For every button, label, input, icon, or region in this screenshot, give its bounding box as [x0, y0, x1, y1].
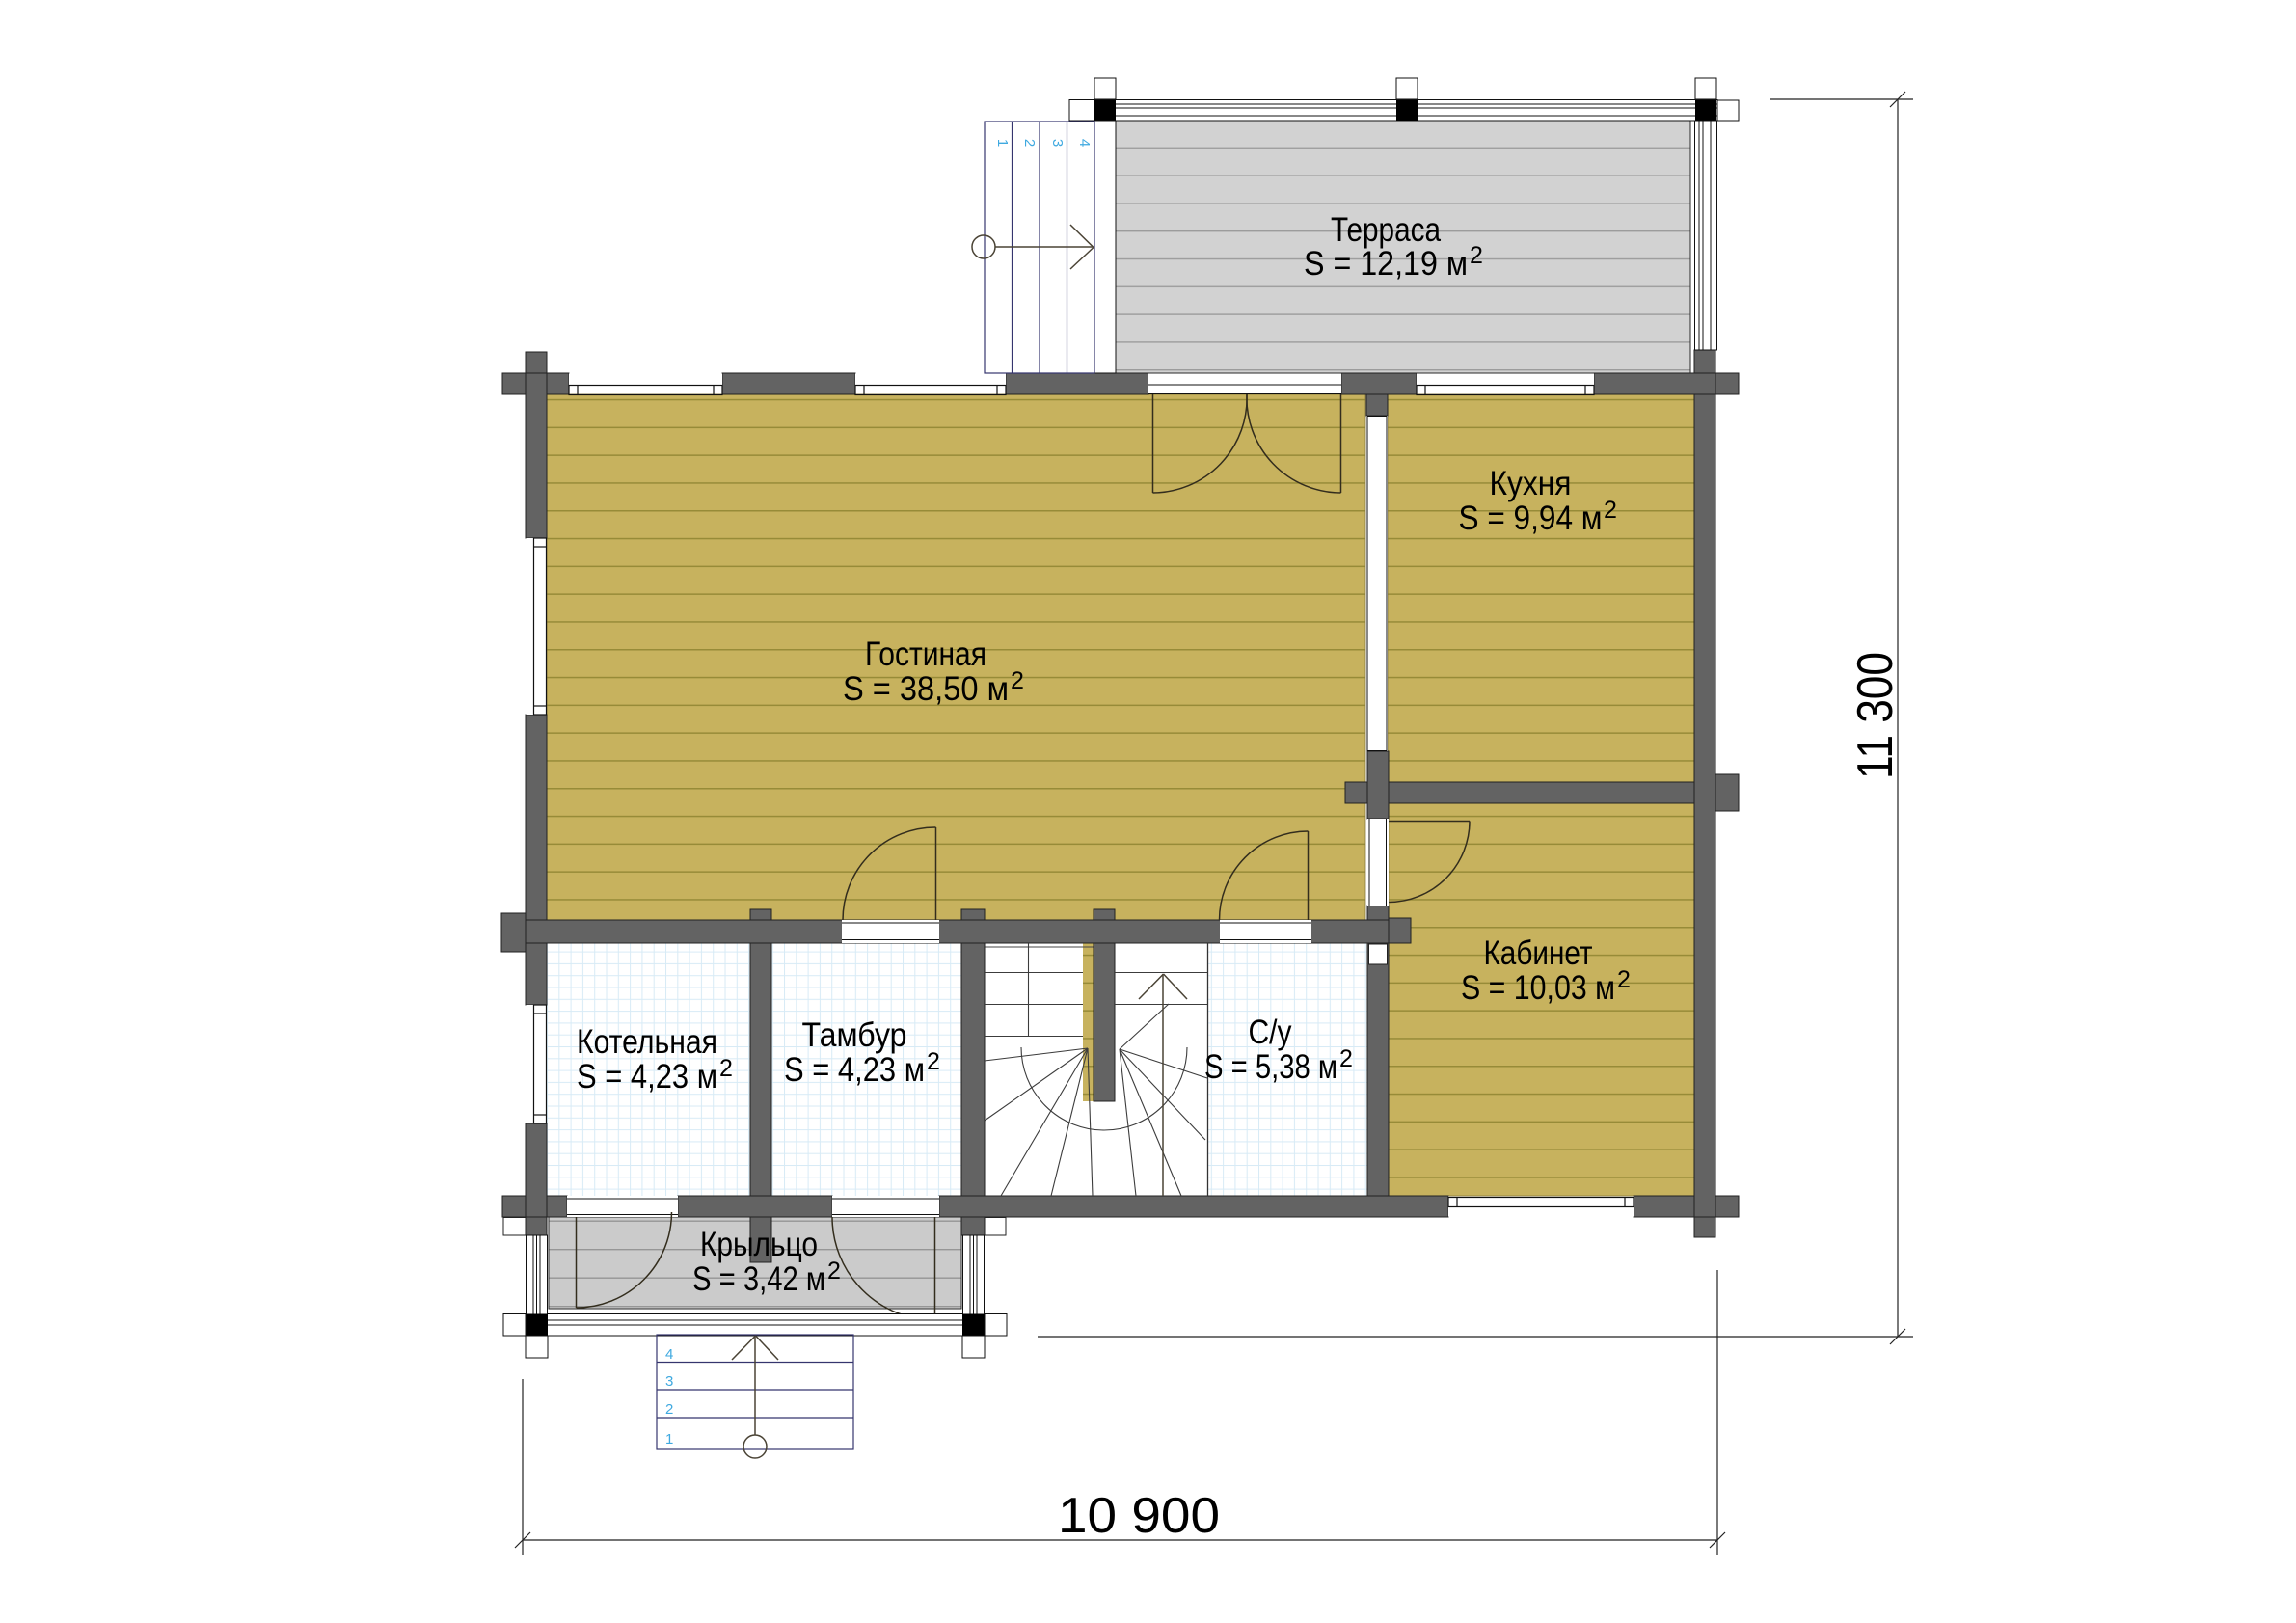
svg-text:2: 2	[827, 1258, 841, 1285]
svg-text:S = 38,50 м: S = 38,50 м	[843, 670, 1009, 708]
svg-text:Крыльцо: Крыльцо	[700, 1226, 818, 1263]
svg-text:S = 10,03 м: S = 10,03 м	[1461, 969, 1615, 1007]
svg-text:2: 2	[1470, 242, 1483, 269]
svg-text:Терраса: Терраса	[1331, 211, 1441, 249]
svg-text:2: 2	[1011, 667, 1024, 694]
svg-text:3: 3	[665, 1373, 673, 1390]
svg-text:2: 2	[665, 1401, 673, 1418]
svg-text:S = 5,38 м: S = 5,38 м	[1204, 1048, 1337, 1086]
svg-text:S = 12,19 м: S = 12,19 м	[1304, 245, 1468, 283]
svg-text:2: 2	[719, 1055, 733, 1082]
svg-text:2: 2	[1604, 497, 1617, 524]
svg-text:2: 2	[1339, 1045, 1353, 1072]
svg-text:2: 2	[1617, 966, 1631, 993]
svg-text:1: 1	[994, 139, 1011, 147]
svg-text:Котельная: Котельная	[577, 1023, 717, 1061]
svg-text:3: 3	[1049, 139, 1066, 147]
svg-text:2: 2	[927, 1048, 940, 1075]
svg-text:Кухня: Кухня	[1490, 465, 1572, 502]
svg-text:S = 9,94 м: S = 9,94 м	[1459, 500, 1603, 537]
svg-text:Гостиная: Гостиная	[865, 636, 986, 673]
svg-text:4: 4	[665, 1346, 673, 1363]
svg-text:1: 1	[665, 1431, 673, 1447]
svg-text:10 900: 10 900	[1058, 1488, 1220, 1544]
svg-text:11 300: 11 300	[1848, 652, 1904, 779]
svg-text:4: 4	[1076, 139, 1093, 147]
svg-text:S = 4,23 м: S = 4,23 м	[784, 1051, 925, 1089]
svg-text:Тамбур: Тамбур	[802, 1016, 907, 1054]
svg-text:S = 3,42 м: S = 3,42 м	[692, 1260, 825, 1298]
svg-text:S = 4,23 м: S = 4,23 м	[577, 1058, 717, 1096]
svg-text:С/у: С/у	[1249, 1014, 1292, 1051]
svg-text:2: 2	[1021, 139, 1038, 147]
svg-text:Кабинет: Кабинет	[1484, 934, 1593, 972]
